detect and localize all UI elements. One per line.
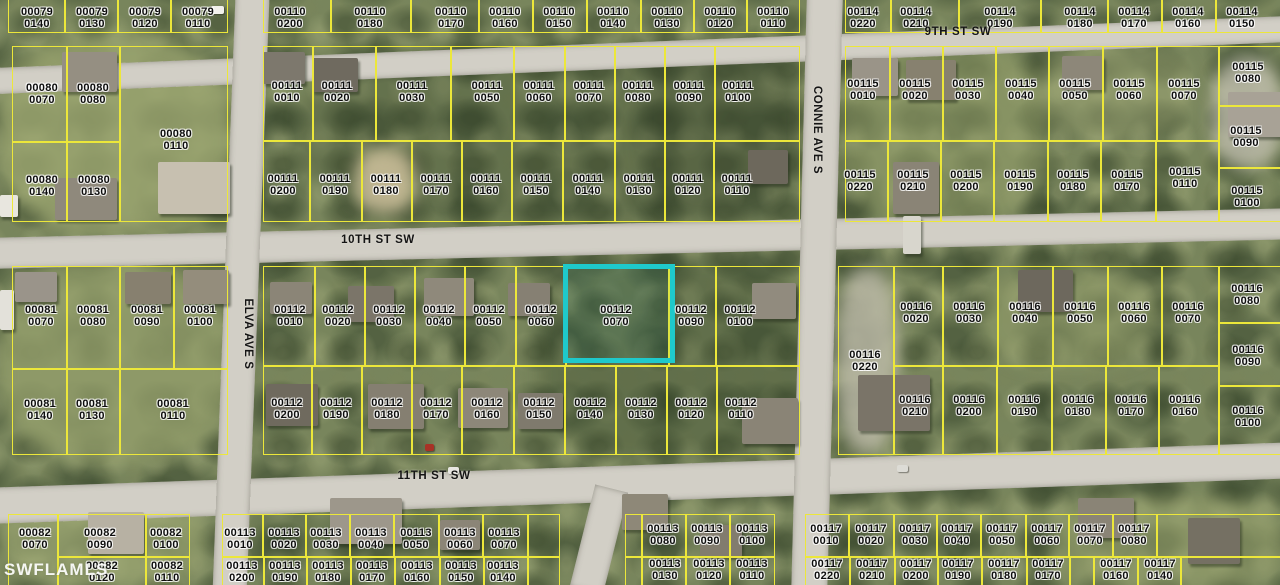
parcel-book-number: 00117 [1130, 558, 1190, 570]
parcel-lot-number: 0020 [886, 313, 946, 325]
parcel-label: 001150200 [936, 169, 996, 193]
parcel-label: 001160160 [1155, 394, 1215, 418]
parcel-lot-number: 0110 [143, 410, 203, 422]
parcel-lot-number: 0100 [1217, 197, 1277, 209]
parcel-divider-line [1218, 322, 1280, 324]
parcel-divider-line [330, 0, 332, 33]
parcel-lot-number: 0070 [11, 316, 71, 328]
parcel-label: 001150030 [938, 78, 998, 102]
parcel-lot-number: 0140 [473, 572, 533, 584]
parcel-book-number: 00111 [708, 80, 768, 92]
parcel-lot-number: 0060 [511, 316, 571, 328]
car [897, 465, 908, 472]
parcel-label: 001140170 [1104, 6, 1164, 30]
parcel-block-boundary [263, 266, 800, 455]
parcel-book-number: 00115 [1218, 61, 1278, 73]
parcel-book-number: 00116 [1217, 283, 1277, 295]
parcel-book-number: 00115 [1154, 78, 1214, 90]
parcel-divider-line [66, 266, 68, 455]
parcel-book-number: 00110 [637, 6, 697, 18]
street-label: CONNIE AVE S [810, 65, 824, 195]
parcel-book-number: 00114 [886, 6, 946, 18]
parcel-lot-number: 0190 [990, 181, 1050, 193]
parcel-label: 001160190 [994, 394, 1054, 418]
parcel-lot-number: 0170 [1018, 570, 1078, 582]
parcel-divider-line [1218, 167, 1280, 169]
parcel-lot-number: 0050 [459, 316, 519, 328]
parcel-lot-number: 0050 [1045, 90, 1105, 102]
parcel-label: 000810140 [10, 398, 70, 422]
parcel-book-number: 00079 [62, 6, 122, 18]
parcel-lot-number: 0060 [1099, 90, 1159, 102]
parcel-lot-number: 0110 [137, 572, 197, 584]
parcel-book-number: 00081 [11, 304, 71, 316]
parcel-lot-number: 0090 [1218, 356, 1278, 368]
parcel-lot-number: 0030 [382, 92, 442, 104]
parcel-lot-number: 0120 [690, 18, 750, 30]
street-label: 10TH ST SW [313, 233, 443, 247]
parcel-lot-number: 0160 [475, 18, 535, 30]
parcel-book-number: 00115 [1097, 169, 1157, 181]
parcel-book-number: 00080 [63, 82, 123, 94]
parcel-book-number: 00114 [1050, 6, 1110, 18]
parcel-label: 001110100 [708, 80, 768, 104]
parcel-label: 001140220 [833, 6, 893, 30]
parcel-label: 001140160 [1158, 6, 1218, 30]
parcel-book-number: 00082 [136, 527, 196, 539]
parcel-label: 001110030 [382, 80, 442, 104]
parcel-lot-number: 0140 [583, 18, 643, 30]
parcel-lot-number: 0200 [936, 181, 996, 193]
parcel-label: 000810090 [117, 304, 177, 328]
parcel-lot-number: 0080 [1217, 295, 1277, 307]
parcel-lot-number: 0160 [1155, 406, 1215, 418]
parcel-lot-number: 0150 [506, 185, 566, 197]
parcel-label: 001150170 [1097, 169, 1157, 193]
parcel-label: 000810100 [170, 304, 230, 328]
parcel-label: 001150100 [1217, 185, 1277, 209]
parcel-book-number: 00111 [457, 80, 517, 92]
parcel-book-number: 00114 [970, 6, 1030, 18]
parcel-lot-number: 0140 [1130, 570, 1190, 582]
parcel-map-screenshot: 0007901400007901300007901200007901100011… [0, 0, 1280, 585]
parcel-book-number: 00115 [1099, 78, 1159, 90]
parcel-lot-number: 0160 [457, 409, 517, 421]
parcel-lot-number: 0070 [1154, 90, 1214, 102]
parcel-book-number: 00116 [939, 394, 999, 406]
parcel-divider-line [893, 365, 1218, 367]
parcel-label: 001140180 [1050, 6, 1110, 30]
parcel-book-number: 00116 [994, 394, 1054, 406]
parcel-book-number: 00112 [457, 397, 517, 409]
parcel-lot-number: 0130 [637, 18, 697, 30]
parcel-label: 001150110 [1155, 166, 1215, 190]
parcel-label: 000800080 [63, 82, 123, 106]
parcel-book-number: 00082 [70, 527, 130, 539]
parcel-label: 001120160 [457, 397, 517, 421]
parcel-book-number: 00111 [307, 80, 367, 92]
parcel-label: 001150210 [883, 169, 943, 193]
parcel-lot-number: 0210 [885, 406, 945, 418]
parcel-label: 001110020 [307, 80, 367, 104]
parcel-divider-line [12, 368, 228, 370]
parcel-book-number: 00115 [833, 78, 893, 90]
parcel-book-number: 00115 [1045, 78, 1105, 90]
parcel-lot-number: 0040 [991, 90, 1051, 102]
parcel-lot-number: 0080 [63, 316, 123, 328]
parcel-book-number: 00115 [1217, 185, 1277, 197]
parcel-label: 001160020 [886, 301, 946, 325]
parcel-lot-number: 0130 [62, 18, 122, 30]
parcel-lot-number: 0040 [995, 313, 1055, 325]
parcel-lot-number: 0100 [708, 92, 768, 104]
parcel-book-number: 00080 [146, 128, 206, 140]
parcel-label: 001110110 [707, 173, 767, 197]
parcel-label: 001100170 [421, 6, 481, 30]
parcel-lot-number: 0060 [1104, 313, 1164, 325]
parcel-lot-number: 0180 [1048, 406, 1108, 418]
parcel-lot-number: 0190 [994, 406, 1054, 418]
parcel-book-number: 00112 [511, 304, 571, 316]
parcel-book-number: 00079 [7, 6, 67, 18]
parcel-book-number: 00080 [12, 174, 72, 186]
parcel-label: 001110150 [506, 173, 566, 197]
parcel-lot-number: 0100 [710, 316, 770, 328]
parcel-label: 001160180 [1048, 394, 1108, 418]
parcel-label: 001160170 [1101, 394, 1161, 418]
parcel-label: 001100140 [583, 6, 643, 30]
parcel-block-boundary [838, 266, 1280, 455]
parcel-lot-number: 0130 [64, 186, 124, 198]
parcel-label: 001160080 [1217, 283, 1277, 307]
parcel-book-number: 00116 [1048, 394, 1108, 406]
parcel-label: 001120070 [586, 304, 646, 328]
parcel-divider-line [263, 365, 800, 367]
parcel-label: 001130100 [722, 523, 782, 547]
parcel-lot-number: 0050 [1050, 313, 1110, 325]
parcel-book-number: 00081 [63, 304, 123, 316]
parcel-lot-number: 0100 [136, 539, 196, 551]
parcel-lot-number: 0130 [62, 410, 122, 422]
parcel-lot-number: 0070 [5, 539, 65, 551]
parcel-book-number: 00116 [1050, 301, 1110, 313]
parcel-book-number: 00112 [459, 304, 519, 316]
parcel-divider-line [57, 556, 190, 558]
parcel-label: 001160100 [1218, 405, 1278, 429]
parcel-lot-number: 0110 [1155, 178, 1215, 190]
parcel-lot-number: 0220 [835, 361, 895, 373]
parcel-book-number: 00113 [473, 560, 533, 572]
parcel-book-number: 00082 [137, 560, 197, 572]
parcel-label: 001150070 [1154, 78, 1214, 102]
parcel-book-number: 00112 [586, 304, 646, 316]
parcel-book-number: 00113 [474, 527, 534, 539]
parcel-lot-number: 0180 [1043, 181, 1103, 193]
parcel-divider-line [12, 141, 119, 143]
parcel-lot-number: 0170 [1097, 181, 1157, 193]
parcel-book-number: 00112 [710, 304, 770, 316]
parcel-book-number: 00081 [170, 304, 230, 316]
parcel-label: 001160200 [939, 394, 999, 418]
parcel-label: 001120110 [711, 397, 771, 421]
parcel-lot-number: 0080 [1218, 73, 1278, 85]
parcel-lot-number: 0030 [938, 90, 998, 102]
parcel-lot-number: 0070 [586, 316, 646, 328]
parcel-label: 001120100 [710, 304, 770, 328]
parcel-label: 000810130 [62, 398, 122, 422]
parcel-lot-number: 0070 [1158, 313, 1218, 325]
parcel-lot-number: 0170 [421, 18, 481, 30]
parcel-book-number: 00114 [1212, 6, 1272, 18]
parcel-lot-number: 0090 [70, 539, 130, 551]
parcel-lot-number: 0020 [307, 92, 367, 104]
parcel-lot-number: 0210 [883, 181, 943, 193]
parcel-book-number: 00116 [1158, 301, 1218, 313]
parcel-label: 001150080 [1218, 61, 1278, 85]
parcel-book-number: 00116 [1155, 394, 1215, 406]
parcel-lot-number: 0140 [7, 18, 67, 30]
parcel-book-number: 00114 [1158, 6, 1218, 18]
parcel-book-number: 00115 [990, 169, 1050, 181]
parcel-divider-line [845, 140, 1218, 142]
parcel-lot-number: 0100 [170, 316, 230, 328]
parcel-divider-line [375, 46, 377, 140]
parcel-label: 001110200 [253, 173, 313, 197]
parcel-label: 001150020 [885, 78, 945, 102]
parcel-lot-number: 0140 [12, 186, 72, 198]
parcel-book-number: 00115 [1155, 166, 1215, 178]
parcel-book-number: 00111 [382, 80, 442, 92]
parcel-book-number: 00116 [939, 301, 999, 313]
parcel-label: 001130070 [474, 527, 534, 551]
parcel-book-number: 00113 [722, 523, 782, 535]
parcel-label: 001100180 [340, 6, 400, 30]
parcel-lot-number: 0010 [833, 90, 893, 102]
parcel-book-number: 00079 [115, 6, 175, 18]
parcel-label: 001100130 [637, 6, 697, 30]
parcel-book-number: 00115 [885, 78, 945, 90]
parcel-book-number: 00113 [722, 558, 782, 570]
parcel-label: 000800140 [12, 174, 72, 198]
parcel-lot-number: 0110 [722, 570, 782, 582]
parcel-label: 001100110 [743, 6, 803, 30]
parcel-book-number: 00116 [1218, 405, 1278, 417]
parcel-label: 001100150 [529, 6, 589, 30]
parcel-divider-line [450, 46, 452, 140]
parcel-lot-number: 0220 [830, 181, 890, 193]
parcel-label: 001120060 [511, 304, 571, 328]
parcel-book-number: 00116 [995, 301, 1055, 313]
parcel-divider-line [1218, 105, 1280, 107]
parcel-label: 001160070 [1158, 301, 1218, 325]
parcel-label: 001160050 [1050, 301, 1110, 325]
parcel-book-number: 00110 [743, 6, 803, 18]
parcel-label: 001150090 [1216, 125, 1276, 149]
parcel-book-number: 00114 [833, 6, 893, 18]
parcel-label: 001160090 [1218, 344, 1278, 368]
parcel-book-number: 00116 [835, 349, 895, 361]
parcel-book-number: 00115 [830, 169, 890, 181]
parcel-lot-number: 0110 [743, 18, 803, 30]
street-label: ELVA AVE S [241, 269, 255, 399]
parcel-book-number: 00081 [117, 304, 177, 316]
parcel-lot-number: 0100 [1218, 417, 1278, 429]
parcel-lot-number: 0200 [260, 18, 320, 30]
parcel-label: 001150180 [1043, 169, 1103, 193]
parcel-book-number: 00111 [506, 173, 566, 185]
parcel-book-number: 00115 [991, 78, 1051, 90]
parcel-lot-number: 0030 [939, 313, 999, 325]
parcel-book-number: 00110 [475, 6, 535, 18]
mls-watermark: SWFLAMLS [4, 560, 108, 580]
parcel-book-number: 00110 [529, 6, 589, 18]
parcel-lot-number: 0090 [117, 316, 177, 328]
parcel-lot-number: 0100 [722, 535, 782, 547]
parcel-divider-line [119, 266, 121, 455]
parcel-label: 001140150 [1212, 6, 1272, 30]
parcel-divider-line [1218, 385, 1280, 387]
parcel-book-number: 00115 [1216, 125, 1276, 137]
parcel-lot-number: 0200 [253, 185, 313, 197]
parcel-book-number: 00114 [1104, 6, 1164, 18]
parcel-label: 000820090 [70, 527, 130, 551]
parcel-label: 001150040 [991, 78, 1051, 102]
parcel-book-number: 00110 [260, 6, 320, 18]
parcel-label: 000790130 [62, 6, 122, 30]
parcel-lot-number: 0020 [885, 90, 945, 102]
parcel-book-number: 00082 [5, 527, 65, 539]
parcel-lot-number: 0080 [63, 94, 123, 106]
parcel-book-number: 00110 [690, 6, 750, 18]
parcel-book-number: 00116 [1218, 344, 1278, 356]
parcel-lot-number: 0110 [711, 409, 771, 421]
parcel-book-number: 00110 [421, 6, 481, 18]
parcel-label: 001120050 [459, 304, 519, 328]
street-label: 9TH ST SW [893, 25, 1023, 39]
parcel-label: 001170080 [1104, 523, 1164, 547]
parcel-book-number: 00110 [340, 6, 400, 18]
parcel-label: 001130110 [722, 558, 782, 582]
parcel-label: 000800130 [64, 174, 124, 198]
parcel-label: 001150010 [833, 78, 893, 102]
parcel-label: 000810110 [143, 398, 203, 422]
parcel-label: 000790140 [7, 6, 67, 30]
parcel-label: 000820110 [137, 560, 197, 584]
parcel-book-number: 00110 [583, 6, 643, 18]
parcel-label: 001150060 [1099, 78, 1159, 102]
parcel-lot-number: 0200 [939, 406, 999, 418]
parcel-label: 001130140 [473, 560, 533, 584]
parcel-label: 001160220 [835, 349, 895, 373]
parcel-lot-number: 0160 [1158, 18, 1218, 30]
parcel-lot-number: 0170 [1104, 18, 1164, 30]
parcel-label: 001110050 [457, 80, 517, 104]
parcel-book-number: 00115 [883, 169, 943, 181]
parcel-book-number: 00112 [711, 397, 771, 409]
parcel-book-number: 00080 [64, 174, 124, 186]
parcel-lot-number: 0070 [474, 539, 534, 551]
parcel-book-number: 00111 [707, 173, 767, 185]
parcel-lot-number: 0140 [10, 410, 70, 422]
parcel-label: 001150220 [830, 169, 890, 193]
parcel-book-number: 00111 [253, 173, 313, 185]
parcel-lot-number: 0080 [1104, 535, 1164, 547]
parcel-book-number: 00116 [885, 394, 945, 406]
parcel-label: 000820070 [5, 527, 65, 551]
parcel-book-number: 00116 [1101, 394, 1161, 406]
parcel-divider-line [222, 556, 560, 558]
parcel-book-number: 00115 [938, 78, 998, 90]
parcel-lot-number: 0050 [457, 92, 517, 104]
parcel-book-number: 00116 [1104, 301, 1164, 313]
parcel-book-number: 00117 [1104, 523, 1164, 535]
parcel-lot-number: 0090 [1216, 137, 1276, 149]
parcel-divider-line [410, 0, 412, 33]
parcel-lot-number: 0120 [115, 18, 175, 30]
parcel-block-boundary [845, 46, 1280, 222]
parcel-divider-line [1040, 0, 1042, 33]
parcel-label: 000800110 [146, 128, 206, 152]
parcel-label: 001160060 [1104, 301, 1164, 325]
parcel-lot-number: 0170 [1101, 406, 1161, 418]
parcel-lot-number: 0150 [529, 18, 589, 30]
parcel-book-number: 00116 [886, 301, 946, 313]
parcel-label: 000810080 [63, 304, 123, 328]
parcel-lot-number: 0110 [146, 140, 206, 152]
parcel-lot-number: 0110 [707, 185, 767, 197]
parcel-book-number: 00115 [1043, 169, 1103, 181]
parcel-label: 000820100 [136, 527, 196, 551]
parcel-label: 001100160 [475, 6, 535, 30]
parcel-book-number: 00117 [1018, 558, 1078, 570]
parcel-label: 001160040 [995, 301, 1055, 325]
parcel-divider-line [263, 140, 800, 142]
parcel-lot-number: 0150 [1212, 18, 1272, 30]
parcel-label: 000810070 [11, 304, 71, 328]
parcel-book-number: 00081 [143, 398, 203, 410]
parcel-lot-number: 0110 [168, 18, 228, 30]
parcel-book-number: 00079 [168, 6, 228, 18]
parcel-lot-number: 0220 [833, 18, 893, 30]
parcel-lot-number: 0180 [1050, 18, 1110, 30]
parcel-book-number: 00081 [10, 398, 70, 410]
parcel-label: 001170170 [1018, 558, 1078, 582]
parcel-label: 001170140 [1130, 558, 1190, 582]
parcel-label: 000790110 [168, 6, 228, 30]
satellite-map: 0007901400007901300007901200007901100011… [0, 0, 1280, 585]
parcel-label: 001100200 [260, 6, 320, 30]
parcel-label: 000790120 [115, 6, 175, 30]
parcel-book-number: 00115 [936, 169, 996, 181]
parcel-label: 001160210 [885, 394, 945, 418]
parcel-label: 001100120 [690, 6, 750, 30]
parcel-label: 001150190 [990, 169, 1050, 193]
street-label: 11TH ST SW [369, 469, 499, 483]
parcel-label: 001150050 [1045, 78, 1105, 102]
parcel-book-number: 00081 [62, 398, 122, 410]
parcel-label: 001160030 [939, 301, 999, 325]
parcel-lot-number: 0180 [340, 18, 400, 30]
